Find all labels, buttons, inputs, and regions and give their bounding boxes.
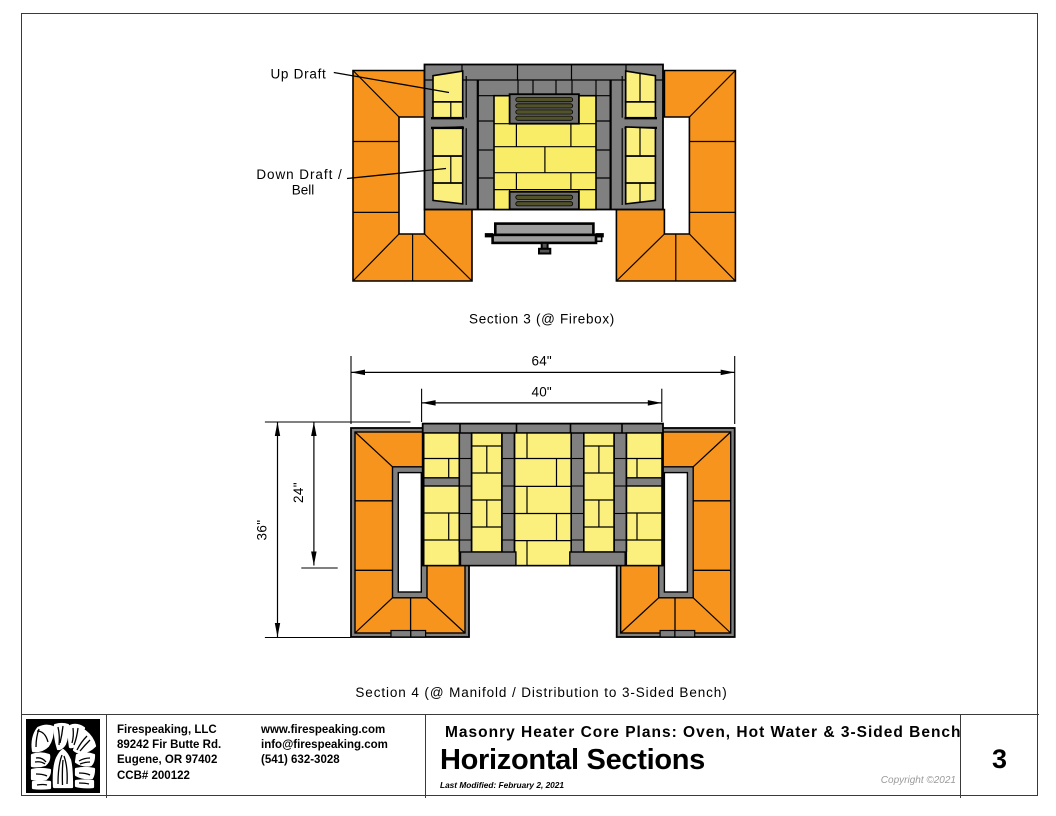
svg-text:Section 4 (@ Manifold / Distri: Section 4 (@ Manifold / Distribution to … (355, 685, 727, 700)
svg-text:40": 40" (531, 385, 551, 400)
svg-text:Bell: Bell (292, 183, 315, 198)
svg-text:24": 24" (291, 482, 306, 503)
svg-text:36": 36" (255, 519, 270, 540)
svg-text:64": 64" (531, 354, 551, 369)
svg-text:Down Draft /: Down Draft / (256, 167, 342, 182)
svg-text:Section 3 (@ Firebox): Section 3 (@ Firebox) (469, 312, 615, 327)
svg-text:Up Draft: Up Draft (270, 67, 326, 82)
